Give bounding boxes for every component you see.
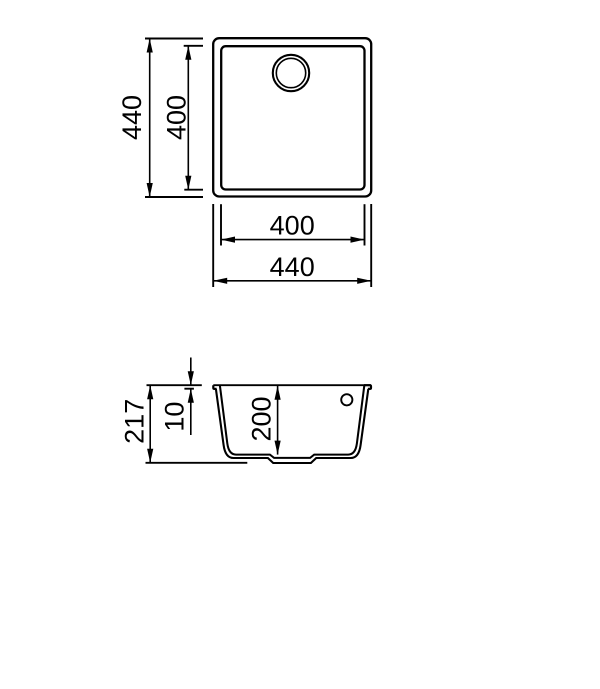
svg-text:440: 440 [270,252,315,282]
svg-text:200: 200 [246,396,276,441]
svg-text:217: 217 [119,399,149,444]
svg-text:400: 400 [270,210,315,240]
svg-text:400: 400 [162,95,192,140]
svg-text:10: 10 [160,402,190,432]
svg-text:440: 440 [117,95,147,140]
